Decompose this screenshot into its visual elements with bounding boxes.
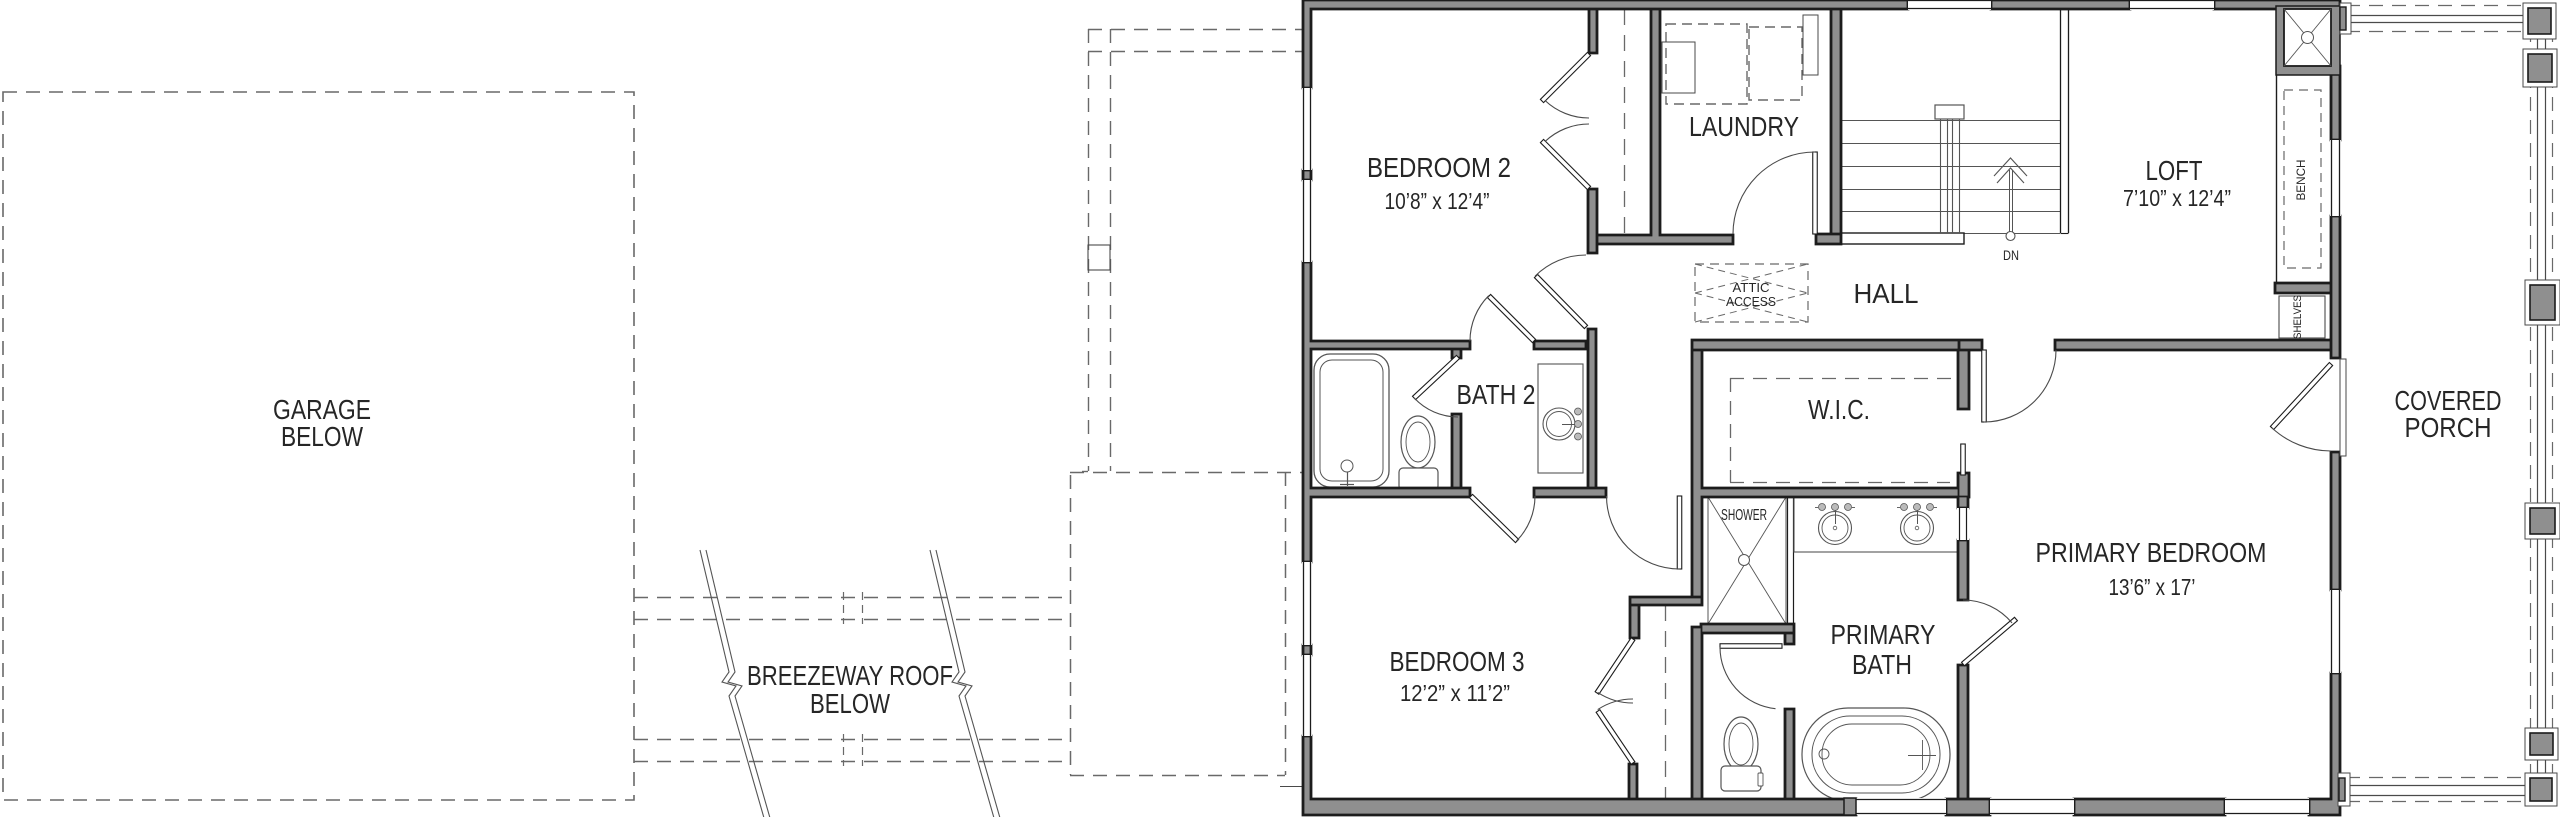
svg-text:DN: DN [2003,248,2019,263]
svg-text:PRIMARY: PRIMARY [1831,619,1936,650]
svg-text:10’8” x 12’4”: 10’8” x 12’4” [1385,188,1490,214]
svg-text:ATTIC: ATTIC [1733,280,1770,295]
svg-text:BEDROOM 3: BEDROOM 3 [1390,646,1525,677]
svg-text:HALL: HALL [1854,278,1919,309]
svg-text:SHELVES: SHELVES [2292,295,2304,339]
svg-text:BREEZEWAY ROOF: BREEZEWAY ROOF [747,660,953,691]
svg-text:LOFT: LOFT [2146,155,2203,186]
svg-text:13’6” x 17’: 13’6” x 17’ [2109,574,2196,600]
svg-text:ACCESS: ACCESS [1726,294,1776,309]
svg-text:7’10” x 12’4”: 7’10” x 12’4” [2123,185,2231,211]
svg-text:BATH: BATH [1852,649,1912,680]
svg-text:LAUNDRY: LAUNDRY [1689,111,1799,142]
svg-text:W.I.C.: W.I.C. [1808,394,1870,425]
svg-text:BEDROOM 2: BEDROOM 2 [1367,152,1511,183]
svg-text:BENCH: BENCH [2294,160,2308,201]
svg-text:PORCH: PORCH [2405,412,2492,443]
svg-text:SHOWER: SHOWER [1721,507,1767,524]
svg-text:PRIMARY BEDROOM: PRIMARY BEDROOM [2036,537,2267,568]
svg-text:BATH 2: BATH 2 [1457,379,1536,410]
svg-text:12’2” x 11’2”: 12’2” x 11’2” [1400,680,1510,706]
svg-text:BELOW: BELOW [281,421,363,452]
svg-text:BELOW: BELOW [810,688,890,719]
